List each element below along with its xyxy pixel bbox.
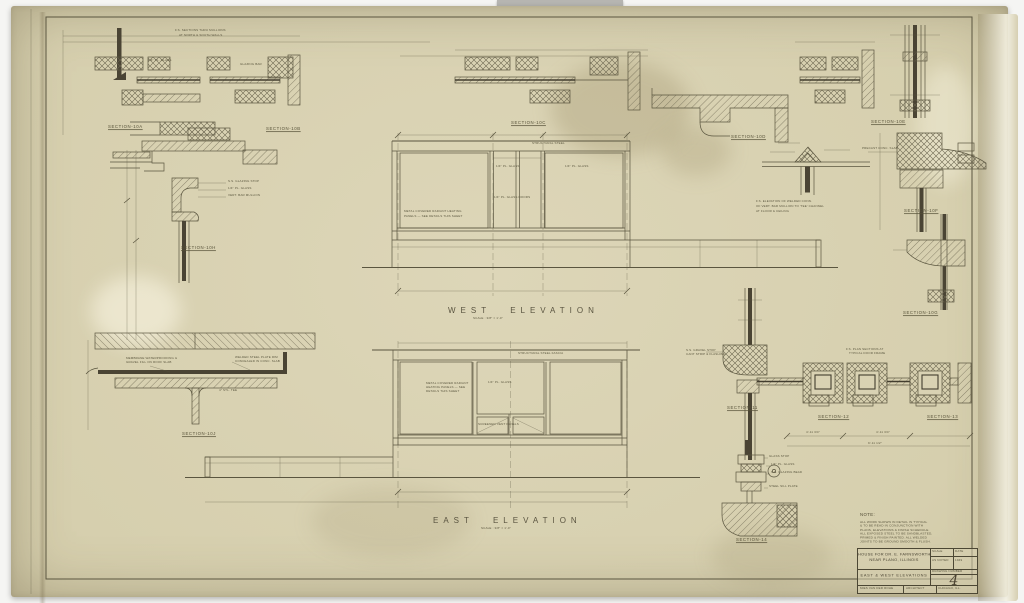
detail-door-frame-sections <box>757 363 973 446</box>
caption-welded-conn: AT FLOOR & CEILING <box>756 210 789 213</box>
annotation-text: GLAZING BAR <box>240 63 262 66</box>
detail-roof-edge-left <box>86 333 315 430</box>
section-label: SECTION-10J <box>182 432 216 436</box>
annotation-text: PRECAST CONC. SLAB <box>862 147 898 150</box>
annotation-text: STRUCTURAL STEEL <box>532 142 565 145</box>
section-label: SECTION-10A <box>108 125 143 129</box>
sheet-title: EAST & WEST ELEVATIONS <box>858 573 930 582</box>
detail-top-step-section <box>652 88 788 142</box>
section-label: SECTION-13 <box>927 415 958 419</box>
dimension-text: 9'-11 1/2" <box>868 442 882 445</box>
title-block: HOUSE FOR DR. E. FARNSWORTH NEAR PLANO, … <box>857 548 978 594</box>
title-block-divider <box>953 549 954 569</box>
east-elevation-drawing <box>185 341 700 508</box>
caption-door-frames: F.S. PLAN SECTIONS AT <box>846 348 883 351</box>
annotation-text: 4" STL. TEE <box>219 389 237 392</box>
annotation-text: STRUCTURAL STEEL FASCIA <box>518 352 563 355</box>
project-name: HOUSE FOR DR. E. FARNSWORTH NEAR PLANO, … <box>858 552 930 570</box>
annotation-text: MEMBRANE WATERPROOFING & <box>126 357 177 360</box>
annotation-text: 1/4" PL. GLASS <box>488 381 512 384</box>
project-line-2: NEAR PLANO, ILLINOIS <box>858 557 930 562</box>
section-label: SECTION-10C <box>511 121 546 125</box>
title-block-divider <box>936 585 937 593</box>
annotation-text: 1/4" PL. GLASS <box>565 165 589 168</box>
annotation-text: DETAILS THIS SHEET <box>426 390 459 393</box>
caption-welded-conn: OF VERT. BAR MULLION TO 'TEE' CHANNEL <box>756 205 824 208</box>
architect-role: ARCHITECT <box>906 587 925 590</box>
note-heading: NOTE: <box>860 513 875 517</box>
annotation-text: STEEL SILL PLATE <box>769 485 798 488</box>
detail-top-left-mullion-sections <box>63 28 430 135</box>
section-label: SECTION-12 <box>818 415 849 419</box>
note-body: ALL WORK SHOWN IN DETAIL IS TYPICAL & TO… <box>860 521 980 544</box>
date-label: DATE <box>955 550 963 553</box>
annotation-text: CANT STRIP & FLASHING <box>686 353 726 356</box>
architect-firm: MIES VAN DER ROHE <box>860 587 893 590</box>
annotation-text: METAL COVERED RADIANT <box>426 382 468 385</box>
annotation-text: 1/4" PL. GLASS <box>496 165 520 168</box>
detail-top-middle-mullion-sections <box>400 50 648 110</box>
annotation-text: GLASS STOP <box>769 455 789 458</box>
east-elevation-title: EAST ELEVATION <box>433 516 582 525</box>
annotation-text: AT NORTH & SOUTH WALLS <box>179 34 222 37</box>
scale-label: SCALE <box>932 550 943 553</box>
annotation-text: 1/4" PL. GLASS <box>148 59 172 62</box>
scale-value: AS NOTED <box>932 559 949 562</box>
section-label: SECTION-14 <box>736 538 767 542</box>
annotation-text: CONCEALED IN CONC. SLAB <box>235 360 280 363</box>
annotation-text: 1/4" PL. GLASS DOORS <box>494 196 530 199</box>
west-elevation-scale: SCALE : 3/8" = 1'-0" <box>473 317 503 320</box>
detail-top-right-mullion-sections <box>795 42 875 108</box>
annotation-text: METAL COVERED RADIANT HEATING <box>404 210 462 213</box>
annotation-text: WELDED STEEL PLATE RIM <box>235 356 278 359</box>
section-label: SECTION-10G <box>903 311 938 315</box>
detail-mullion-elevation-right <box>890 25 940 118</box>
annotation-text: S.S. GLAZING BEAD <box>771 471 802 474</box>
architect-city: CHICAGO, ILL. <box>938 587 961 590</box>
dimension-text: 4'-11 3/4" <box>806 431 820 434</box>
annotation-text: 1/4" PL. GLASS <box>228 187 252 190</box>
section-label: SECTION-10B <box>266 127 301 131</box>
caption-door-frames: TYPICAL DOOR FRAME <box>849 352 885 355</box>
west-elevation-title: WEST ELEVATION <box>448 306 599 315</box>
annotation-text: 1/4" PL. GLASS <box>771 463 795 466</box>
date-value: 1949 <box>955 559 962 562</box>
section-label: SECTION-10E <box>871 120 906 124</box>
detail-sill-cove-right <box>893 214 965 310</box>
caption-welded-conn: F.S. ELEVATION OF WELDED CONN. <box>756 200 812 203</box>
annotation-text: S.S. GRAVEL STOP <box>686 349 716 352</box>
section-label: SECTION-11 <box>727 406 758 410</box>
east-elevation-scale: SCALE : 3/8" = 1'-0" <box>481 527 511 530</box>
west-elevation-drawing <box>362 132 838 296</box>
annotation-text: GRAVEL FILL ON ROOF SLAB <box>126 361 172 364</box>
sheet-title-text: EAST & WEST ELEVATIONS <box>858 573 930 578</box>
annotation-text: PANELS — SEE DETAILS THIS SHEET <box>404 215 463 218</box>
title-block-divider <box>903 585 904 593</box>
detail-jamb-section-bottom-right <box>706 288 767 460</box>
annotation-text: SCREENED VENT PANELS <box>478 423 519 426</box>
annotation-text: VERT. BAR MULLION <box>228 194 260 197</box>
section-label: SECTION-10F <box>904 209 938 213</box>
annotation-text: F.S. SECTIONS THRU MULLIONS <box>175 29 226 32</box>
note-line: JOINTS TO BE GROUND SMOOTH & FLUSH. <box>860 540 980 544</box>
annotation-text: S.S. GLAZING STOP <box>228 180 259 183</box>
annotation-text: HEATING PANELS — SEE <box>426 386 465 389</box>
detail-welded-connection <box>762 143 870 195</box>
dimension-text: 4'-11 3/4" <box>876 431 890 434</box>
title-block-divider <box>930 556 977 557</box>
detail-head-section-left <box>110 128 277 340</box>
section-label: SECTION-10D <box>731 135 766 139</box>
scanned-drawing-sheet: SECTION-10A SECTION-10B SECTION-10C SECT… <box>0 0 1024 603</box>
section-label: SECTION-10H <box>181 246 216 250</box>
